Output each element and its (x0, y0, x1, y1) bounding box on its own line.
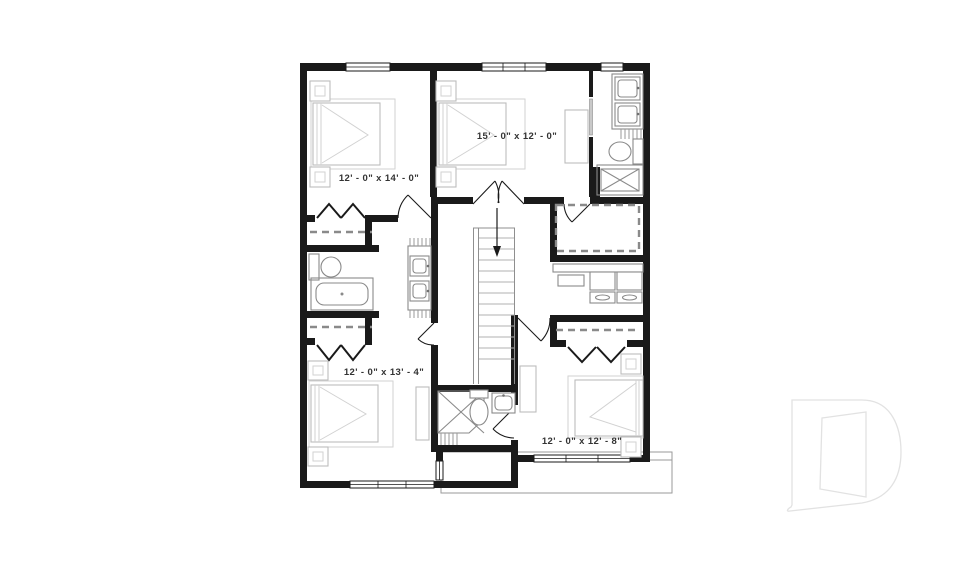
nightstand (436, 81, 456, 101)
laundry-cabinet (558, 275, 584, 286)
window (482, 63, 546, 71)
bedroom-4-dimensions: 12' - 0" x 12' - 8" (542, 436, 622, 447)
washer-icon (590, 272, 615, 303)
bedroom-3-dimensions: 12' - 0" x 13' - 4" (344, 367, 424, 378)
bifold-doors (317, 204, 341, 218)
window (350, 481, 434, 488)
nightstand (308, 447, 328, 466)
threshold-hatch (410, 238, 430, 246)
toilet-fixture (609, 139, 643, 164)
bathtub-fixture (311, 278, 373, 310)
nightstand (621, 354, 641, 374)
door-bedroom-1 (398, 195, 431, 218)
linen-hatch (621, 129, 641, 139)
nightstand (308, 361, 328, 380)
bed (313, 103, 380, 165)
toilet-fixture (470, 390, 488, 425)
toilet-fixture (309, 254, 341, 280)
dryer-icon (617, 272, 642, 303)
sink-fixture (615, 77, 640, 100)
bedroom-1-dimensions: 12' - 0" x 14' - 0" (339, 173, 419, 184)
walk-in-closet-dashes (556, 205, 639, 251)
window (601, 63, 623, 71)
door-walk-in-closet (564, 204, 590, 222)
door-bedroom-3 (418, 323, 434, 345)
dresser (520, 366, 536, 412)
nightstand (310, 81, 330, 101)
bedroom-1-furniture (310, 81, 395, 187)
door-bedroom-4 (518, 318, 550, 341)
sink-fixture (615, 103, 640, 126)
vanity-double-sink (408, 246, 431, 310)
stairs-down-arrow (493, 208, 501, 257)
sink-fixture (492, 393, 515, 413)
laundry (553, 264, 643, 303)
watermark-d-logo (787, 400, 901, 511)
window (436, 461, 443, 480)
nightstand (310, 167, 330, 187)
nightstand (621, 437, 641, 457)
bifold-doors (568, 347, 596, 362)
pocket-door-ensuite (590, 99, 593, 135)
dresser (416, 387, 429, 440)
floor-plan-page: 12' - 0" x 14' - 0" 15' - 0" x 12' - 0" … (0, 0, 960, 569)
hall-bathroom (438, 390, 515, 445)
bifold-doors (317, 345, 341, 360)
bed (575, 380, 643, 436)
bed (311, 385, 378, 442)
bedroom-3-closet (310, 327, 372, 360)
dresser (565, 110, 588, 163)
window (346, 63, 390, 71)
window (534, 455, 630, 462)
stairs (473, 208, 515, 384)
laundry-counter (553, 264, 643, 272)
nightstand (436, 167, 456, 187)
threshold-hatch (410, 310, 430, 318)
floor-plan-canvas: 12' - 0" x 14' - 0" 15' - 0" x 12' - 0" … (0, 0, 960, 569)
bath-mat-hatch (441, 433, 457, 445)
bedroom-2-dimensions: 15' - 0" x 12' - 0" (477, 131, 557, 142)
shower-fixture (597, 165, 643, 195)
bedroom-1-closet (310, 204, 372, 232)
ensuite-bathroom (597, 74, 643, 195)
door-french-bedroom-2 (473, 181, 524, 204)
